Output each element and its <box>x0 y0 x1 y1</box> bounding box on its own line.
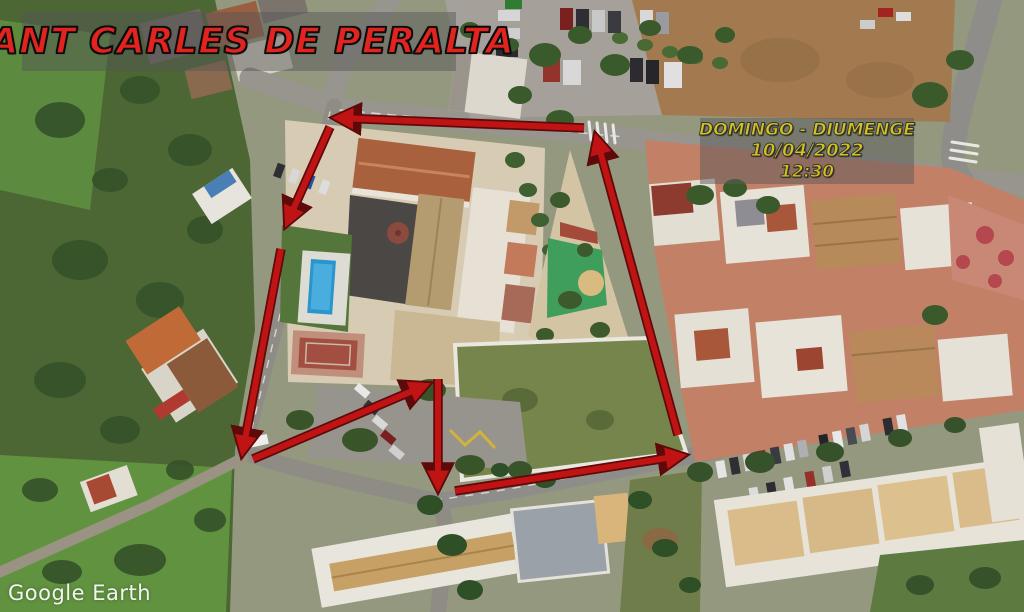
schedule-overlay: DOMINGO - DIUMENGE 10/04/2022 12:30 <box>700 118 914 184</box>
map-title: SANT CARLES DE PERALTA <box>0 21 515 62</box>
schedule-time: 12:30 <box>780 162 834 182</box>
google-earth-watermark: Google Earth <box>8 581 151 605</box>
map-screenshot: SANT CARLES DE PERALTA DOMINGO - DIUMENG… <box>0 0 1024 612</box>
satellite-imagery <box>0 0 1024 612</box>
schedule-date: 10/04/2022 <box>750 140 863 161</box>
title-banner: SANT CARLES DE PERALTA <box>22 12 456 71</box>
schedule-day: DOMINGO - DIUMENGE <box>699 120 915 140</box>
